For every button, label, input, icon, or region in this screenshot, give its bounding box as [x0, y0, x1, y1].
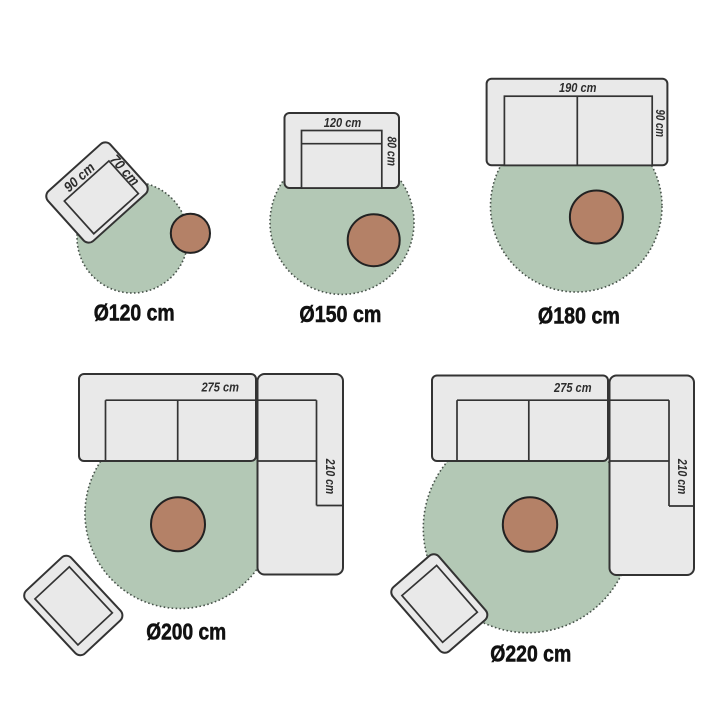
svg-text:Ø150 cm: Ø150 cm [299, 301, 381, 327]
svg-text:190 cm: 190 cm [559, 81, 597, 95]
svg-text:80 cm: 80 cm [384, 136, 398, 166]
svg-text:120 cm: 120 cm [324, 116, 362, 130]
svg-text:275 cm: 275 cm [201, 381, 239, 395]
svg-text:90 cm: 90 cm [653, 109, 667, 137]
svg-text:Ø200 cm: Ø200 cm [146, 619, 226, 645]
svg-text:210 cm: 210 cm [675, 458, 689, 494]
svg-text:Ø180 cm: Ø180 cm [538, 303, 620, 329]
svg-text:275 cm: 275 cm [553, 381, 591, 395]
svg-text:210 cm: 210 cm [323, 458, 337, 494]
svg-text:Ø120 cm: Ø120 cm [94, 300, 175, 326]
svg-text:Ø220 cm: Ø220 cm [490, 640, 571, 666]
